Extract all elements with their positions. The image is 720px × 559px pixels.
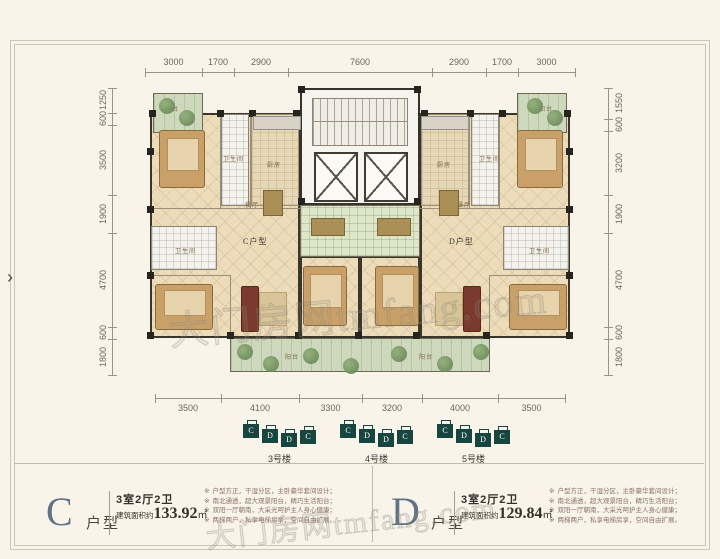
- dimension-tick: [604, 339, 613, 340]
- stair-elevator-core: [300, 88, 420, 205]
- bed: [509, 284, 567, 330]
- unit-c-top-balcony: [153, 93, 203, 133]
- feature-line: ※双阳一厅朝南，大采光呵护主人身心健康；: [204, 506, 366, 516]
- wall-segment: [414, 198, 421, 205]
- dimension-tick: [498, 394, 499, 403]
- wall-segment: [566, 148, 573, 155]
- unit-d-area-prefix: 建筑面积约: [461, 511, 499, 520]
- rug: [435, 292, 463, 326]
- dimension-tick: [108, 125, 117, 126]
- room-label: 卫生间: [529, 246, 550, 255]
- dimension-label: 1800: [97, 339, 109, 375]
- wall-segment: [413, 332, 420, 339]
- plant-icon: [527, 98, 543, 114]
- dimension-label: 4000: [422, 403, 498, 413]
- building-block-c: C: [300, 430, 316, 444]
- dining-table: [311, 218, 345, 236]
- plant-icon: [391, 346, 407, 362]
- unit-c-type-label: 户型: [86, 512, 120, 533]
- plant-icon: [159, 98, 175, 114]
- room-label: 厨房: [267, 160, 281, 169]
- room-label: 卫生间: [479, 154, 500, 163]
- dimension-label: 1800: [613, 339, 625, 375]
- wall-segment: [564, 110, 571, 117]
- wall-segment: [147, 272, 154, 279]
- building-block-d: D: [475, 433, 491, 447]
- room-label: 餐厅: [245, 200, 259, 209]
- plant-icon: [343, 358, 359, 374]
- dimension-tick: [155, 394, 156, 403]
- dimension-label: 3200: [613, 131, 625, 195]
- building-block-c: C: [437, 424, 453, 438]
- dimension-tick: [145, 68, 146, 77]
- dimension-label: 600: [613, 119, 625, 131]
- dimension-tick: [575, 68, 576, 77]
- dimension-tick: [422, 394, 423, 403]
- unit-d-letter: D: [391, 490, 420, 534]
- dimension-tick: [604, 119, 613, 120]
- dimension-label: 2900: [432, 57, 486, 67]
- building-block-d: D: [359, 429, 375, 443]
- dimension-label: 3300: [299, 403, 362, 413]
- feature-line: ※户型方正，干湿分区，主卧豪华套间设计；: [204, 487, 366, 497]
- plant-icon: [179, 110, 195, 126]
- dimension-label: 1250: [97, 88, 109, 113]
- unit-c-letter: C: [46, 490, 73, 534]
- plant-icon: [437, 356, 453, 372]
- wall-segment: [355, 332, 362, 339]
- elevator-left: [314, 152, 358, 202]
- building-block-c: C: [243, 424, 259, 438]
- dimension-label: 3500: [155, 403, 221, 413]
- dimension-label: 4100: [221, 403, 299, 413]
- dimension-tick: [108, 195, 117, 196]
- dimension-label: 600: [97, 113, 109, 125]
- unit-c-features: ※户型方正，干湿分区，主卧豪华套间设计；※南北通透，超大观景阳台，精巧生活阳台；…: [204, 487, 366, 525]
- plant-icon: [547, 110, 563, 126]
- wall-segment: [414, 86, 421, 93]
- unit-d-features: ※户型方正，干湿分区，主卧豪华套间设计；※南北通透，超大观景阳台，精巧生活阳台；…: [549, 487, 711, 525]
- wall-segment: [298, 198, 305, 205]
- sofa: [463, 286, 481, 332]
- dimension-tick: [362, 394, 363, 403]
- building-block-d: D: [456, 429, 472, 443]
- feature-line: ※南北通透，超大观景阳台，精巧生活阳台；: [204, 497, 366, 507]
- feature-line: ※双阳一厅朝南，大采光呵护主人身心健康；: [549, 506, 711, 516]
- building-block-d: D: [378, 433, 394, 447]
- dimension-label: 1550: [613, 88, 625, 119]
- floorplan-page: › C户型 D: [0, 0, 720, 559]
- dining-table: [263, 190, 283, 216]
- building-3号楼: CDDC3号楼: [243, 424, 316, 464]
- dimension-label: 3000: [145, 57, 202, 67]
- bed: [155, 284, 213, 330]
- rug: [259, 292, 287, 326]
- dimension-line: [155, 398, 565, 399]
- wall-segment: [149, 110, 156, 117]
- dimension-tick: [288, 68, 289, 77]
- feature-line: ※两梯两户，私享电梯房享，空间自由扩展。: [549, 516, 711, 526]
- building-block-d: D: [281, 433, 297, 447]
- building-block-c: C: [494, 430, 510, 444]
- staircase: [312, 98, 408, 146]
- plant-icon: [237, 344, 253, 360]
- plant-icon: [263, 356, 279, 372]
- dimension-label: 3000: [518, 57, 575, 67]
- floor-plan: C户型 D户型 阳台次卧卫生间厨房餐厅卫生间主卧客厅次卧阳台阳台次卧卫生间厨房餐…: [145, 88, 575, 375]
- dimension-label: 3500: [97, 125, 109, 195]
- wall-segment: [147, 206, 154, 213]
- wall-segment: [483, 332, 490, 339]
- dimension-tick: [604, 233, 613, 234]
- dimension-tick: [565, 394, 566, 403]
- dimension-label: 1700: [486, 57, 518, 67]
- dimension-label: 600: [97, 327, 109, 339]
- feature-line: ※户型方正，干湿分区，主卧豪华套间设计；: [549, 487, 711, 497]
- building-block-c: C: [340, 424, 356, 438]
- room-label: 卫生间: [175, 246, 196, 255]
- dimension-label: 3500: [498, 403, 565, 413]
- dimension-tick: [604, 375, 613, 376]
- dimension-tick: [108, 113, 117, 114]
- room-label: 餐厅: [457, 200, 471, 209]
- dimension-label: 2900: [234, 57, 288, 67]
- dimension-tick: [604, 195, 613, 196]
- dimension-tick: [108, 88, 117, 89]
- dimension-tick: [604, 88, 613, 89]
- bed: [159, 130, 205, 188]
- dimension-label: 3200: [362, 403, 422, 413]
- info-divider: [14, 463, 704, 464]
- elevator-right: [364, 152, 408, 202]
- dimension-label: 1900: [97, 195, 109, 233]
- dimension-tick: [518, 68, 519, 77]
- next-arrow-icon[interactable]: ›: [7, 268, 13, 286]
- building-block-d: D: [262, 429, 278, 443]
- wall-segment: [147, 332, 154, 339]
- plant-icon: [303, 348, 319, 364]
- dining-table: [377, 218, 411, 236]
- dimension-tick: [108, 375, 117, 376]
- dimension-tick: [234, 68, 235, 77]
- wall-segment: [566, 332, 573, 339]
- dimension-label: 7600: [288, 57, 432, 67]
- room-label: 卫生间: [223, 154, 244, 163]
- dimension-label: 4700: [97, 233, 109, 327]
- bed: [375, 266, 419, 326]
- dimension-tick: [604, 131, 613, 132]
- unit-d-area-value: 129.84: [499, 505, 543, 522]
- plan-unit-c-label: C户型: [243, 236, 267, 247]
- dimension-tick: [202, 68, 203, 77]
- dimension-tick: [108, 339, 117, 340]
- unit-c-area-value: 133.92: [154, 505, 198, 522]
- wall-segment: [217, 110, 224, 117]
- dimension-line: [145, 72, 575, 73]
- unit-d-area: 建筑面积约129.84㎡: [461, 505, 553, 523]
- unit-d-type-label: 户型: [431, 512, 465, 533]
- room-label: 厨房: [437, 160, 451, 169]
- building-5号楼: CDDC5号楼: [437, 424, 510, 464]
- sofa: [241, 286, 259, 332]
- dimension-label: 600: [613, 327, 625, 339]
- room-label: 阳台: [419, 352, 433, 361]
- dining-table: [439, 190, 459, 216]
- unit-c-area-prefix: 建筑面积约: [116, 511, 154, 520]
- dimension-tick: [604, 327, 613, 328]
- dimension-label: 1900: [613, 195, 625, 233]
- unit-c-area: 建筑面积约133.92㎡: [116, 505, 208, 523]
- wall-segment: [499, 110, 506, 117]
- feature-line: ※南北通透，超大观景阳台，精巧生活阳台；: [549, 497, 711, 507]
- dimension-tick: [486, 68, 487, 77]
- plan-unit-d-label: D户型: [449, 236, 474, 247]
- wall-segment: [566, 206, 573, 213]
- building-4号楼: CDDC4号楼: [340, 424, 413, 464]
- plant-icon: [473, 344, 489, 360]
- wall-segment: [295, 332, 302, 339]
- panel-divider: [372, 466, 373, 542]
- dimension-label: 4700: [613, 233, 625, 327]
- dimension-tick: [432, 68, 433, 77]
- room-label: 阳台: [285, 352, 299, 361]
- dimension-tick: [299, 394, 300, 403]
- dimension-label: 1700: [202, 57, 234, 67]
- wall-segment: [566, 272, 573, 279]
- bed: [303, 266, 347, 326]
- dimension-tick: [221, 394, 222, 403]
- dimension-line: [112, 88, 113, 375]
- dimension-tick: [108, 233, 117, 234]
- kitchen-counter: [253, 116, 301, 130]
- bed: [517, 130, 563, 188]
- wall-segment: [147, 148, 154, 155]
- building-block-c: C: [397, 430, 413, 444]
- feature-line: ※两梯两户，私享电梯房享，空间自由扩展。: [204, 516, 366, 526]
- kitchen-counter: [421, 116, 469, 130]
- wall-segment: [298, 86, 305, 93]
- wall-segment: [227, 332, 234, 339]
- dimension-tick: [108, 327, 117, 328]
